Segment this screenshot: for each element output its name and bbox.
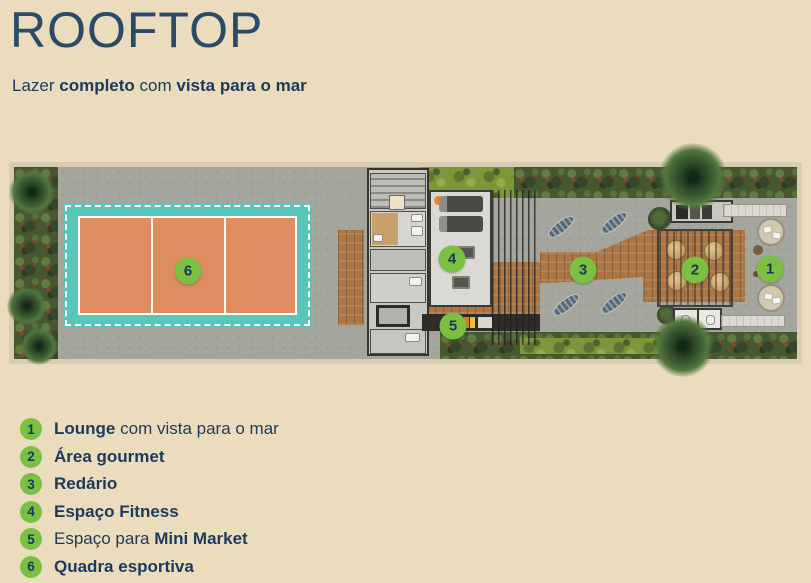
- legend-item-5: 5Espaço para Mini Market: [20, 528, 279, 550]
- plan-marker-5: 5: [440, 313, 467, 340]
- legend-item-6: 6Quadra esportiva: [20, 556, 279, 578]
- plan-marker-2: 2: [682, 257, 709, 284]
- page-title: ROOFTOP: [10, 4, 263, 57]
- legend-badge-4: 4: [20, 501, 42, 523]
- rooftop-floor-plan: 123456: [9, 162, 802, 364]
- plan-marker-6: 6: [175, 258, 202, 285]
- plan-marker-1: 1: [757, 256, 784, 283]
- legend-label: Espaço para Mini Market: [54, 529, 248, 549]
- legend-badge-1: 1: [20, 418, 42, 440]
- rooftop-brochure-page: { "header": { "title": "ROOFTOP", "subti…: [0, 0, 811, 583]
- legend-label: Redário: [54, 474, 117, 494]
- legend-label: Quadra esportiva: [54, 557, 194, 577]
- plan-marker-3: 3: [570, 257, 597, 284]
- legend-item-4: 4Espaço Fitness: [20, 501, 279, 523]
- legend-badge-6: 6: [20, 556, 42, 578]
- plan-marker-4: 4: [439, 246, 466, 273]
- legend-badge-2: 2: [20, 446, 42, 468]
- legend: 1Lounge com vista para o mar2Área gourme…: [20, 418, 279, 583]
- legend-item-1: 1Lounge com vista para o mar: [20, 418, 279, 440]
- legend-label: Espaço Fitness: [54, 502, 179, 522]
- legend-label: Área gourmet: [54, 447, 165, 467]
- page-subtitle: Lazer completo com vista para o mar: [12, 76, 307, 96]
- legend-item-2: 2Área gourmet: [20, 446, 279, 468]
- legend-label: Lounge com vista para o mar: [54, 419, 279, 439]
- legend-badge-3: 3: [20, 473, 42, 495]
- legend-badge-5: 5: [20, 528, 42, 550]
- plan-markers-layer: 123456: [9, 162, 802, 364]
- legend-item-3: 3Redário: [20, 473, 279, 495]
